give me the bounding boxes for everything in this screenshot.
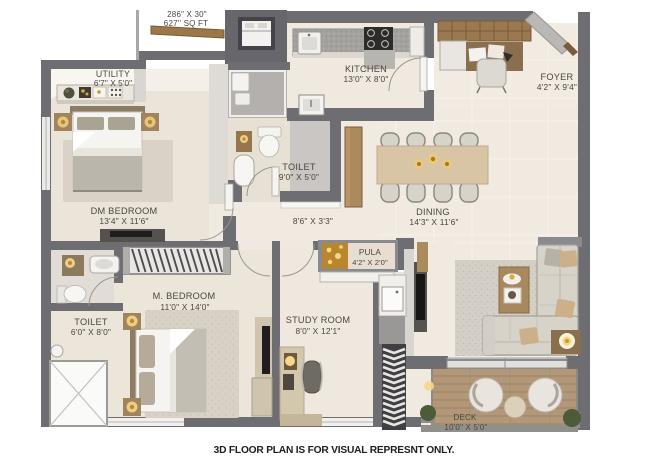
svg-text:14'3" X 11'6": 14'3" X 11'6" <box>409 217 458 227</box>
svg-text:11'0" X 14'0": 11'0" X 14'0" <box>160 302 209 312</box>
svg-text:8'0" X 12'1": 8'0" X 12'1" <box>295 326 340 336</box>
svg-text:M. BEDROOM: M. BEDROOM <box>153 291 216 301</box>
svg-text:627'' SQ FT: 627'' SQ FT <box>164 19 208 28</box>
svg-text:3D FLOOR PLAN IS FOR VISUAL RE: 3D FLOOR PLAN IS FOR VISUAL REPRESNT ONL… <box>214 445 455 456</box>
svg-text:DECK: DECK <box>453 413 476 422</box>
svg-text:4'2" X 2'0": 4'2" X 2'0" <box>352 258 388 267</box>
svg-text:13'0" X 8'0": 13'0" X 8'0" <box>343 74 388 84</box>
svg-text:DINING: DINING <box>416 207 450 217</box>
svg-text:TOILET: TOILET <box>74 317 108 327</box>
svg-text:6'7" X 5'0": 6'7" X 5'0" <box>94 79 132 88</box>
svg-text:10'0" X 5'0": 10'0" X 5'0" <box>444 423 487 432</box>
svg-text:FOYER: FOYER <box>541 72 574 82</box>
svg-text:8'6" X 3'3": 8'6" X 3'3" <box>293 216 333 226</box>
svg-text:TOILET: TOILET <box>282 162 316 172</box>
svg-text:13'4" X 11'6": 13'4" X 11'6" <box>99 216 148 226</box>
svg-text:PULA: PULA <box>359 248 382 257</box>
svg-text:4'2" X 9'4": 4'2" X 9'4" <box>537 82 577 92</box>
svg-text:6'0" X 8'0": 6'0" X 8'0" <box>71 327 111 337</box>
svg-text:STUDY ROOM: STUDY ROOM <box>286 315 351 325</box>
svg-text:UTILITY: UTILITY <box>96 69 130 79</box>
svg-text:286" X 30": 286" X 30" <box>167 10 207 19</box>
svg-text:DM BEDROOM: DM BEDROOM <box>91 206 158 216</box>
svg-text:9'0" X 5'0": 9'0" X 5'0" <box>279 172 319 182</box>
svg-text:KITCHEN: KITCHEN <box>345 64 387 74</box>
